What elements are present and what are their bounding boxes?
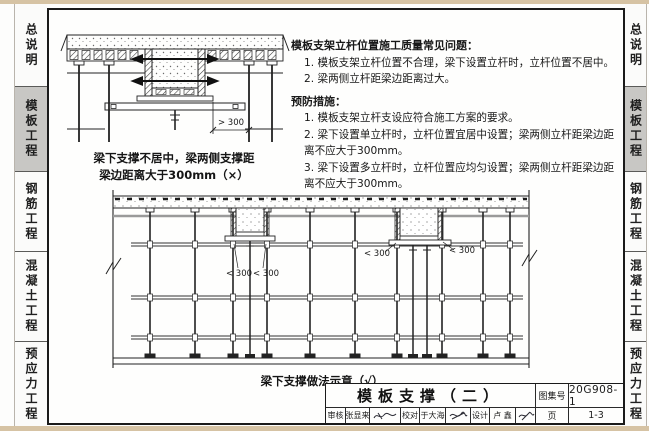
- notes-text: 模板支架立杆位置施工质量常见问题： 1. 模板支架立杆位置不合理，梁下设置立杆时…: [291, 38, 621, 193]
- drawing-title-cell: 模板支撑（二）: [326, 384, 535, 407]
- figure1-caption: 梁下支撑不居中，梁两侧支撑距 梁边距离大于300mm（×）: [51, 150, 297, 184]
- tab-label: 预应力工程: [630, 347, 642, 422]
- proofreader-name: 于大海: [419, 408, 445, 423]
- tab-label: 钢筋工程: [630, 182, 642, 242]
- tab-label: 总说明: [630, 23, 642, 68]
- tab-label: 混凝土工程: [630, 259, 642, 334]
- tab-prestress[interactable]: 预应力工程: [15, 342, 47, 426]
- problem-item: 1. 模板支架立杆位置不合理，梁下设置立杆时，立杆位置不居中。: [304, 55, 621, 72]
- thumb-index-left: 总说明 模板工程 钢筋工程 混凝土工程 预应力工程: [15, 4, 47, 426]
- review-label: 审核: [326, 408, 345, 423]
- page-number: 1-3: [568, 407, 623, 423]
- dim-less-300: < 300: [226, 269, 252, 279]
- signature-scribble-icon: [372, 410, 398, 422]
- tab-prestress[interactable]: 预应力工程: [625, 342, 646, 426]
- drawing-title: 模板支撑（二）: [357, 385, 504, 406]
- designer-signature: [515, 408, 535, 423]
- tab-label: 钢筋工程: [25, 182, 37, 242]
- measures-heading: 预防措施：: [291, 94, 621, 111]
- page-label: 页: [535, 407, 568, 423]
- figure-beam-support-correct-elevation: < 300 < 300 < 300 < 300: [105, 188, 539, 372]
- measure-item: 2. 梁下设置单立杆时，立杆位置宜居中设置；梁两侧立杆距梁边距离不应大于300m…: [304, 127, 621, 160]
- signature-scribble-icon: [448, 410, 469, 422]
- atlas-page: 总说明 模板工程 钢筋工程 混凝土工程 预应力工程 总说明 模板工程 钢筋工程 …: [0, 0, 649, 431]
- tab-concrete[interactable]: 混凝土工程: [625, 252, 646, 342]
- tab-concrete[interactable]: 混凝土工程: [15, 252, 47, 342]
- page-edge-top: [0, 0, 649, 4]
- tab-general-notes[interactable]: 总说明: [625, 4, 646, 87]
- problem-item: 2. 梁两侧立杆距梁边距离过大。: [304, 71, 621, 88]
- tab-formwork[interactable]: 模板工程: [15, 87, 47, 172]
- tab-label: 模板工程: [25, 99, 37, 159]
- thumb-index-right: 总说明 模板工程 钢筋工程 混凝土工程 预应力工程: [625, 4, 646, 426]
- designer-name: 卢 鑫: [489, 408, 515, 423]
- sheet-frame: > 300 梁下支撑不居中，梁两侧支撑距 梁边距离大于300mm（×） 模板支架…: [47, 8, 625, 425]
- page-edge-bottom: [0, 426, 649, 431]
- atlas-no-label: 图集号: [535, 384, 568, 407]
- staff-row: 审核 张显来 校对 于大海 设计 卢 鑫: [326, 407, 535, 423]
- proofreader-signature: [445, 408, 470, 423]
- dim-greater-300: > 300: [218, 118, 244, 128]
- dim-less-300: < 300: [364, 249, 390, 259]
- figure1-caption-line1: 梁下支撑不居中，梁两侧支撑距: [51, 150, 297, 167]
- design-label: 设计: [470, 408, 489, 423]
- title-block: 模板支撑（二） 图集号 20G908-1 审核 张显来 校对 于大海 设计 卢 …: [325, 383, 623, 423]
- reviewer-signature: [369, 408, 400, 423]
- signature-scribble-icon: [517, 410, 535, 422]
- measure-item: 1. 模板支架立杆支设应符合施工方案的要求。: [304, 110, 621, 127]
- tab-label: 预应力工程: [25, 347, 37, 422]
- atlas-no-value: 20G908-1: [568, 384, 623, 407]
- reviewer-name: 张显来: [345, 408, 369, 423]
- tab-label: 总说明: [25, 23, 37, 68]
- dim-less-300: < 300: [253, 269, 279, 279]
- tab-label: 混凝土工程: [25, 259, 37, 334]
- tab-label: 模板工程: [630, 99, 642, 159]
- proof-label: 校对: [400, 408, 419, 423]
- tab-rebar[interactable]: 钢筋工程: [625, 172, 646, 252]
- tab-general-notes[interactable]: 总说明: [15, 4, 47, 87]
- figure-beam-support-wrong-detail: > 300: [57, 30, 294, 154]
- tab-rebar[interactable]: 钢筋工程: [15, 172, 47, 252]
- page-edge-line-right: [646, 4, 647, 426]
- figure1-caption-line2: 梁边距离大于300mm（×）: [51, 167, 297, 184]
- dim-less-300: < 300: [449, 246, 475, 256]
- problems-heading: 模板支架立杆位置施工质量常见问题：: [291, 38, 621, 55]
- tab-formwork[interactable]: 模板工程: [625, 87, 646, 172]
